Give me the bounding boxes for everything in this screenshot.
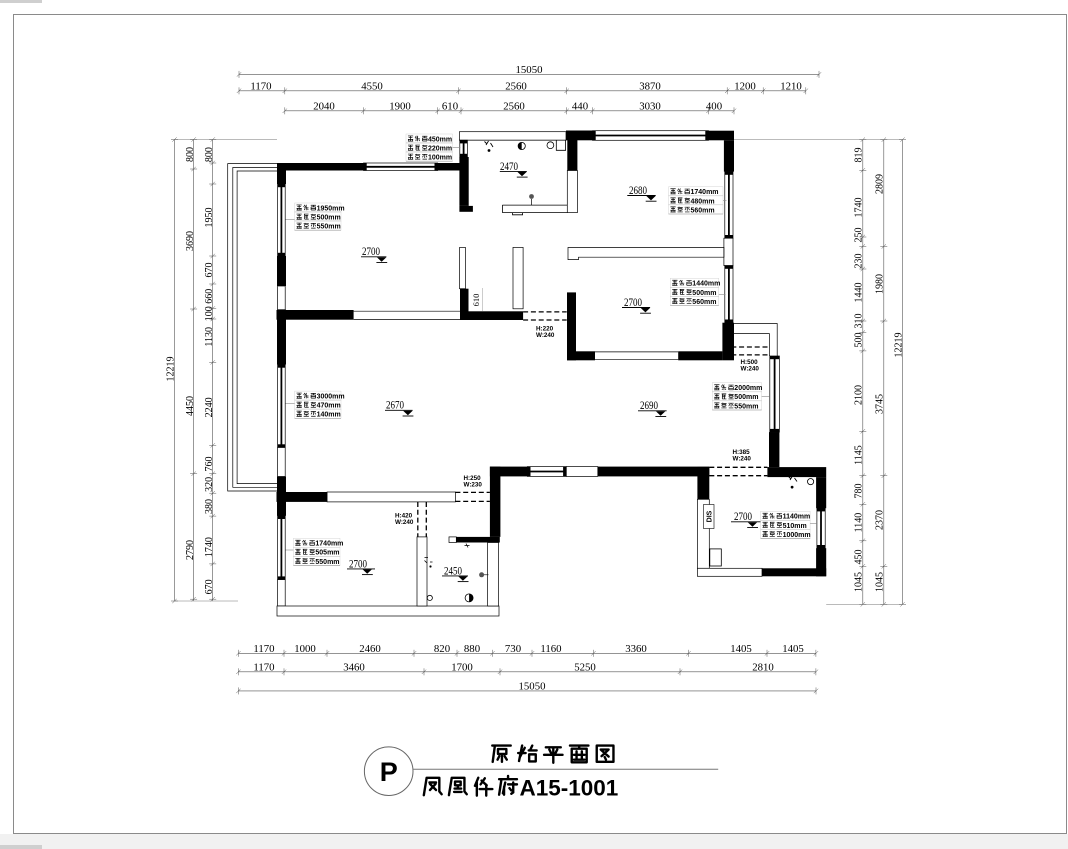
- svg-text:1000mm: 1000mm: [783, 532, 811, 539]
- svg-text:3360: 3360: [625, 643, 647, 655]
- svg-text:2470: 2470: [500, 159, 518, 173]
- svg-text:500mm: 500mm: [317, 215, 341, 222]
- svg-text:5250: 5250: [574, 661, 596, 673]
- svg-text:819: 819: [854, 148, 865, 163]
- svg-text:800: 800: [185, 147, 196, 162]
- svg-text:250: 250: [854, 228, 865, 243]
- svg-text:W:240: W:240: [741, 366, 760, 373]
- svg-text:800: 800: [204, 147, 215, 162]
- svg-text:140mm: 140mm: [317, 412, 341, 419]
- svg-text:1980: 1980: [875, 274, 886, 294]
- svg-text:660: 660: [204, 289, 215, 304]
- svg-text:1140: 1140: [854, 513, 865, 533]
- svg-text:1950: 1950: [204, 208, 215, 228]
- svg-text:1160: 1160: [540, 643, 561, 655]
- svg-text:560mm: 560mm: [691, 207, 715, 214]
- svg-text:2680: 2680: [629, 183, 647, 197]
- svg-text:12219: 12219: [894, 333, 905, 358]
- svg-text:450mm: 450mm: [428, 136, 452, 143]
- svg-text:670: 670: [204, 579, 215, 594]
- svg-text:2000mm: 2000mm: [734, 385, 762, 392]
- svg-text:P: P: [380, 757, 398, 787]
- svg-text:1000: 1000: [294, 643, 316, 655]
- svg-text:380: 380: [204, 499, 215, 514]
- svg-text:100: 100: [204, 306, 215, 321]
- svg-text:1900: 1900: [389, 100, 411, 112]
- svg-text:3030: 3030: [639, 100, 661, 112]
- svg-text:730: 730: [505, 643, 521, 655]
- svg-text:15050: 15050: [516, 64, 543, 76]
- svg-text:1210: 1210: [780, 80, 802, 92]
- svg-text:500mm: 500mm: [692, 290, 716, 297]
- svg-text:DIS: DIS: [707, 510, 714, 522]
- svg-text:2370: 2370: [875, 510, 886, 530]
- svg-text:3690: 3690: [185, 231, 196, 251]
- svg-text:3460: 3460: [343, 661, 365, 673]
- svg-text:2460: 2460: [359, 643, 381, 655]
- svg-text:310: 310: [854, 314, 865, 329]
- svg-text:550mm: 550mm: [317, 224, 341, 231]
- svg-text:2240: 2240: [204, 397, 215, 417]
- svg-text:2100: 2100: [854, 385, 865, 405]
- svg-text:1145: 1145: [854, 445, 865, 465]
- svg-text:100mm: 100mm: [428, 155, 452, 162]
- svg-text:2670: 2670: [386, 398, 404, 412]
- svg-text:2700: 2700: [734, 509, 752, 523]
- svg-text:2560: 2560: [503, 100, 525, 112]
- svg-text:510mm: 510mm: [783, 523, 807, 530]
- svg-text:550mm: 550mm: [315, 559, 339, 566]
- svg-text:2700: 2700: [362, 244, 380, 258]
- svg-text:220mm: 220mm: [428, 146, 452, 153]
- svg-text:1740mm: 1740mm: [315, 541, 343, 548]
- svg-text:1700: 1700: [451, 661, 473, 673]
- svg-text:1140mm: 1140mm: [783, 514, 811, 521]
- svg-text:1405: 1405: [730, 643, 752, 655]
- svg-text:2700: 2700: [624, 295, 642, 309]
- svg-text:1170: 1170: [253, 661, 274, 673]
- svg-text:2810: 2810: [752, 661, 774, 673]
- svg-text:505mm: 505mm: [315, 550, 339, 557]
- svg-text:3870: 3870: [639, 80, 661, 92]
- svg-text:1440: 1440: [854, 283, 865, 303]
- svg-text:320: 320: [204, 477, 215, 492]
- svg-text:480mm: 480mm: [691, 198, 715, 205]
- svg-text:2040: 2040: [313, 100, 335, 112]
- svg-text:820: 820: [434, 643, 450, 655]
- svg-text:880: 880: [464, 643, 480, 655]
- svg-text:440: 440: [572, 100, 588, 112]
- svg-text:4450: 4450: [185, 396, 196, 416]
- svg-text:3000mm: 3000mm: [317, 394, 345, 401]
- svg-text:2790: 2790: [185, 540, 196, 560]
- svg-text:2809: 2809: [875, 174, 886, 194]
- svg-text:1440mm: 1440mm: [692, 281, 720, 288]
- svg-text:610: 610: [471, 294, 481, 307]
- svg-text:760: 760: [204, 457, 215, 472]
- svg-text:1170: 1170: [250, 80, 271, 92]
- svg-text:12219: 12219: [166, 357, 177, 382]
- svg-text:1740: 1740: [854, 198, 865, 218]
- svg-text:2560: 2560: [505, 80, 527, 92]
- svg-text:780: 780: [854, 484, 865, 499]
- svg-text:670: 670: [204, 263, 215, 278]
- svg-text:1170: 1170: [253, 643, 274, 655]
- svg-text:1405: 1405: [782, 643, 804, 655]
- svg-text:1200: 1200: [734, 80, 756, 92]
- svg-text:500: 500: [854, 333, 865, 348]
- svg-text:1130: 1130: [204, 327, 215, 347]
- svg-text:W:240: W:240: [395, 519, 414, 526]
- svg-text:1950mm: 1950mm: [317, 205, 345, 212]
- svg-text:W:240: W:240: [733, 456, 752, 463]
- svg-text:15050: 15050: [519, 681, 546, 693]
- svg-text:550mm: 550mm: [734, 403, 758, 410]
- svg-text:1045: 1045: [854, 572, 865, 592]
- svg-text:400: 400: [706, 100, 722, 112]
- svg-text:3745: 3745: [875, 394, 886, 414]
- svg-text:2690: 2690: [640, 398, 658, 412]
- svg-text:W:240: W:240: [536, 332, 555, 339]
- svg-text:1740mm: 1740mm: [691, 189, 719, 196]
- svg-text:4550: 4550: [361, 80, 383, 92]
- svg-text:2700: 2700: [349, 556, 367, 570]
- svg-text:500mm: 500mm: [734, 394, 758, 401]
- svg-text:560mm: 560mm: [692, 299, 716, 306]
- svg-text:2450: 2450: [444, 563, 462, 577]
- svg-text:1740: 1740: [204, 537, 215, 557]
- svg-text:A15-1001: A15-1001: [520, 776, 619, 801]
- svg-text:W:230: W:230: [464, 482, 483, 489]
- svg-text:450: 450: [854, 550, 865, 565]
- svg-text:230: 230: [854, 254, 865, 269]
- svg-text:610: 610: [442, 100, 458, 112]
- svg-text:1045: 1045: [875, 572, 886, 592]
- svg-text:470mm: 470mm: [317, 403, 341, 410]
